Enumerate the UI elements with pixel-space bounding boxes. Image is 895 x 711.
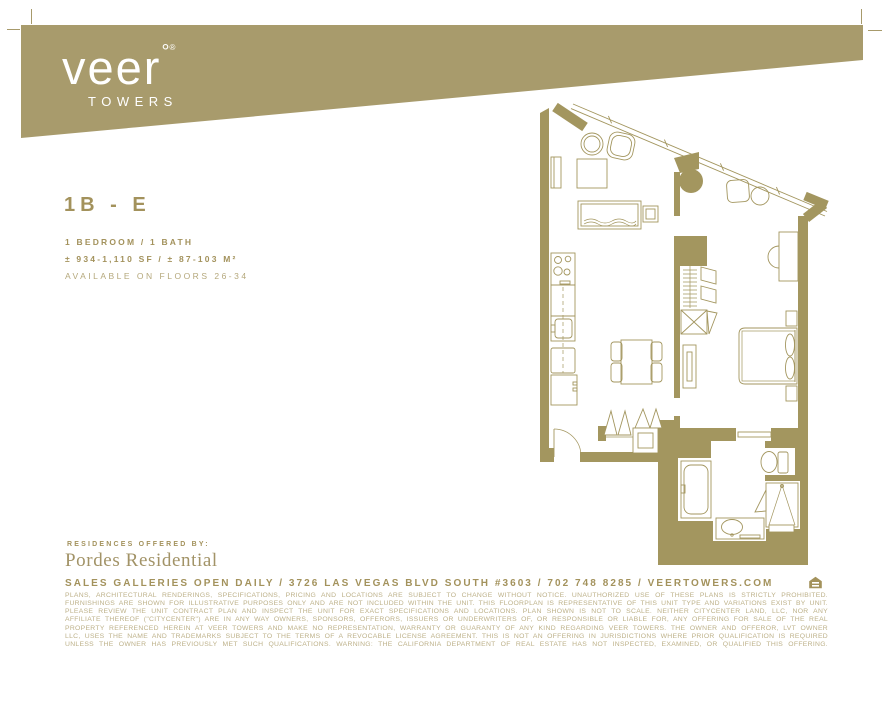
- toilet: [761, 452, 777, 473]
- washer-dryer: [633, 428, 658, 453]
- living-room-furniture: [551, 131, 658, 229]
- desk: [779, 232, 798, 281]
- disclaimer-line: UNLESS THE OWNER HAS PREVIOUSLY MET SUCH…: [65, 641, 828, 649]
- dining-set: [611, 340, 662, 384]
- bifold-door: [650, 409, 662, 428]
- side-table: [643, 206, 658, 222]
- disclaimer-line: FURNISHINGS ARE SHOWN FOR ILLUSTRATIVE P…: [65, 600, 828, 608]
- dresser: [683, 345, 696, 388]
- nightstand: [786, 311, 797, 326]
- dining-chair: [611, 363, 622, 382]
- nightstand: [786, 386, 797, 401]
- spec-available-floors: AVAILABLE ON FLOORS 26-34: [65, 271, 249, 281]
- unit-title: 1B - E: [64, 194, 151, 217]
- desk-chair: [768, 246, 779, 268]
- offered-by-label: RESIDENCES OFFERED BY:: [67, 541, 210, 548]
- round-side-table: [751, 187, 769, 205]
- bedroom-furniture: [683, 179, 798, 437]
- pillow: [786, 334, 795, 356]
- veer-logo: veer°®: [62, 41, 175, 91]
- bath-bench: [769, 525, 794, 532]
- bifold-door: [604, 411, 617, 435]
- bifold-door: [618, 411, 631, 435]
- dining-chair: [651, 342, 662, 361]
- spec-square-footage: ± 934-1,110 SF / ± 87-103 M²: [65, 254, 238, 264]
- floor-plan: [538, 100, 838, 580]
- bed: [739, 328, 797, 384]
- kitchen-appliances: [551, 253, 577, 405]
- dining-table: [621, 340, 652, 384]
- legal-disclaimer: PLANS, ARCHITECTURAL RENDERINGS, SPECIFI…: [65, 592, 828, 649]
- dining-chair: [651, 363, 662, 382]
- equal-housing-icon: [808, 576, 823, 589]
- console: [551, 157, 561, 188]
- registered-trademark-icon: ®: [169, 43, 175, 52]
- disclaimer-line: PLANS, ARCHITECTURAL RENDERINGS, SPECIFI…: [65, 592, 828, 600]
- spec-bed-bath: 1 BEDROOM / 1 BATH: [65, 237, 193, 247]
- logo-wordmark: veer: [62, 41, 161, 94]
- brochure-page: veer°® TOWERS 1B - E 1 BEDROOM / 1 BATH …: [0, 0, 895, 711]
- disclaimer-line: PROPERTY REFERENCED HEREIN AT VEER TOWER…: [65, 625, 828, 633]
- entry-door: [554, 429, 581, 457]
- rug: [577, 159, 607, 188]
- offered-by-name: Pordes Residential: [65, 550, 218, 572]
- closet: [681, 266, 717, 334]
- laundry-closet: [602, 409, 662, 453]
- disclaimer-line: AFFILIATE THEREOF ("CITYCENTER") ARE IN …: [65, 616, 828, 624]
- bathroom-door-threshold: [738, 432, 771, 437]
- pillow: [786, 357, 795, 379]
- sales-contact-line: SALES GALLERIES OPEN DAILY / 3726 LAS VE…: [65, 578, 773, 589]
- logo-tagline: TOWERS: [88, 94, 178, 109]
- bifold-door: [635, 409, 650, 428]
- disclaimer-line: PLEASE REVIEW THE UNIT CONTRACT PLAN AND…: [65, 608, 828, 616]
- plan-walls: [540, 107, 827, 565]
- dining-chair: [611, 342, 622, 361]
- lounge-chair: [606, 131, 637, 162]
- disclaimer-line: LLC, USES THE NAME AND TRADEMARKS SUBJEC…: [65, 633, 828, 641]
